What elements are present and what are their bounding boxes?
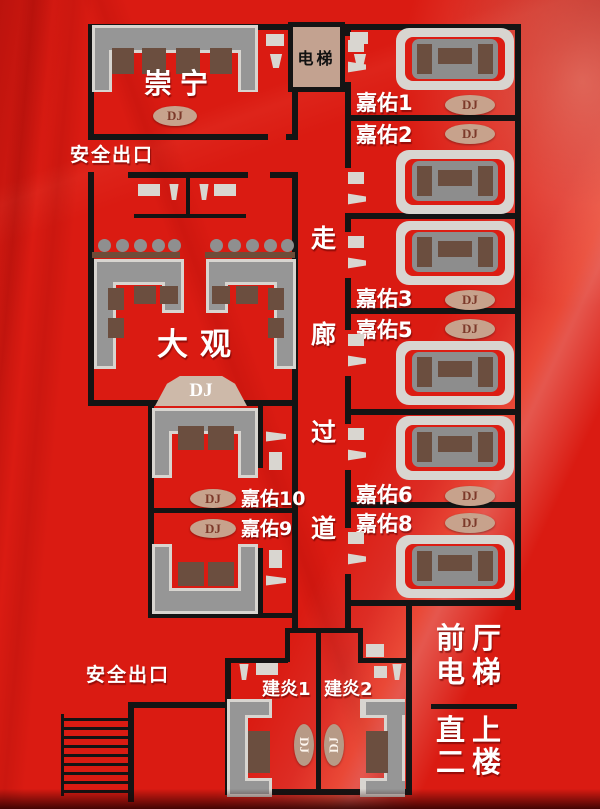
wall [258,548,263,614]
room-jianyan1-label: 建炎1 [262,681,311,699]
door-icon [266,34,284,46]
lobby-line1: 前厅 [424,624,520,653]
wall [358,658,410,663]
dj-badge: DJ [445,319,495,339]
bar-counter [205,252,295,258]
door-icon [348,354,366,368]
wall [515,24,521,610]
room-jiayou10-label: 嘉佑10 [241,490,305,509]
wall [345,376,351,424]
room-jiayou2-label: 嘉佑2 [356,125,413,146]
door-icon [348,334,364,346]
wall [128,702,134,802]
safety-exit-label-top: 安全出口 [70,146,154,165]
room-jiayou3-label: 嘉佑3 [356,289,413,310]
sofa-icon [396,341,514,405]
room-jiayou8-label: 嘉佑8 [356,514,413,535]
door-icon [269,452,282,470]
dj-badge: DJ [190,489,236,508]
restroom-fixture-icon [374,666,387,678]
room-chongning-label: 崇宁 [120,70,240,98]
wall [285,628,363,633]
lobby-divider-line [431,704,517,709]
restroom-fixture-icon [214,184,236,196]
room-jiayou1-label: 嘉佑1 [356,93,413,114]
wall [292,92,298,140]
room-daguan-label: 大观 [140,330,260,361]
restroom-fixture-icon [366,644,384,657]
room-elevator: 电梯 [288,22,345,92]
door-icon [266,430,286,443]
wall [345,278,351,330]
wall [128,702,228,708]
dj-badge: DJ [445,290,495,310]
restroom-fixture-icon [138,184,160,196]
dj-stage: DJ [155,376,247,406]
room-jiayou6-label: 嘉佑6 [356,485,413,506]
door-icon [348,532,364,544]
door-icon [348,428,364,440]
wall [345,115,521,121]
dj-badge: DJ [445,124,495,144]
lobby-line4: 二楼 [424,748,520,777]
bar-stool-icon [98,239,111,252]
sofa-icon [396,150,514,214]
corridor-char: 过 [311,420,336,445]
lobby-line3: 直上 [424,716,520,745]
lobby-line2: 电梯 [424,658,520,687]
wall [358,628,363,662]
floor-plan: 电梯 崇宁 DJ 安全出口 [0,0,600,809]
wall [285,628,290,662]
door-icon [348,192,366,206]
elevator-label: 电梯 [297,45,335,69]
wall [345,82,351,168]
wall [345,600,521,606]
corridor-char: 廊 [311,322,336,347]
room-jiayou9-label: 嘉佑9 [241,520,292,539]
sofa-icon [396,535,514,598]
wall [406,600,412,794]
wall [134,214,246,218]
wall [88,134,268,140]
door-icon [269,550,282,568]
door-icon [348,236,364,248]
dj-badge: DJ [190,519,236,538]
sofa-icon [396,416,514,480]
room-jianyan2-label: 建炎2 [324,681,373,699]
wall [345,409,521,415]
restroom-fixture-icon [198,184,210,200]
restroom-fixture-icon [168,184,180,200]
wall [186,178,190,218]
wall [258,406,263,468]
sofa-icon [396,28,514,90]
dj-badge: DJ [445,95,495,115]
sofa-icon [396,221,514,285]
restroom-fixture-icon [238,664,250,680]
door-icon [348,40,364,52]
corridor-char: 走 [311,226,336,251]
wall [345,470,351,528]
restroom-fixture-icon [391,664,403,680]
door-icon [268,54,284,68]
door-icon [348,172,364,184]
corridor-char: 道 [311,516,336,541]
restroom-fixture-icon [256,663,278,675]
dj-badge: DJ [324,724,344,766]
dj-badge: DJ [445,486,495,506]
door-icon [348,552,366,566]
door-icon [348,448,366,462]
bar-counter [92,252,180,258]
room-jiayou5-label: 嘉佑5 [356,320,413,341]
safety-exit-label-bottom: 安全出口 [86,666,170,685]
dj-badge: DJ [153,106,197,126]
door-icon [266,574,286,587]
dj-badge: DJ [445,513,495,533]
dj-badge: DJ [294,724,314,766]
wall [316,628,321,794]
door-icon [348,256,366,270]
